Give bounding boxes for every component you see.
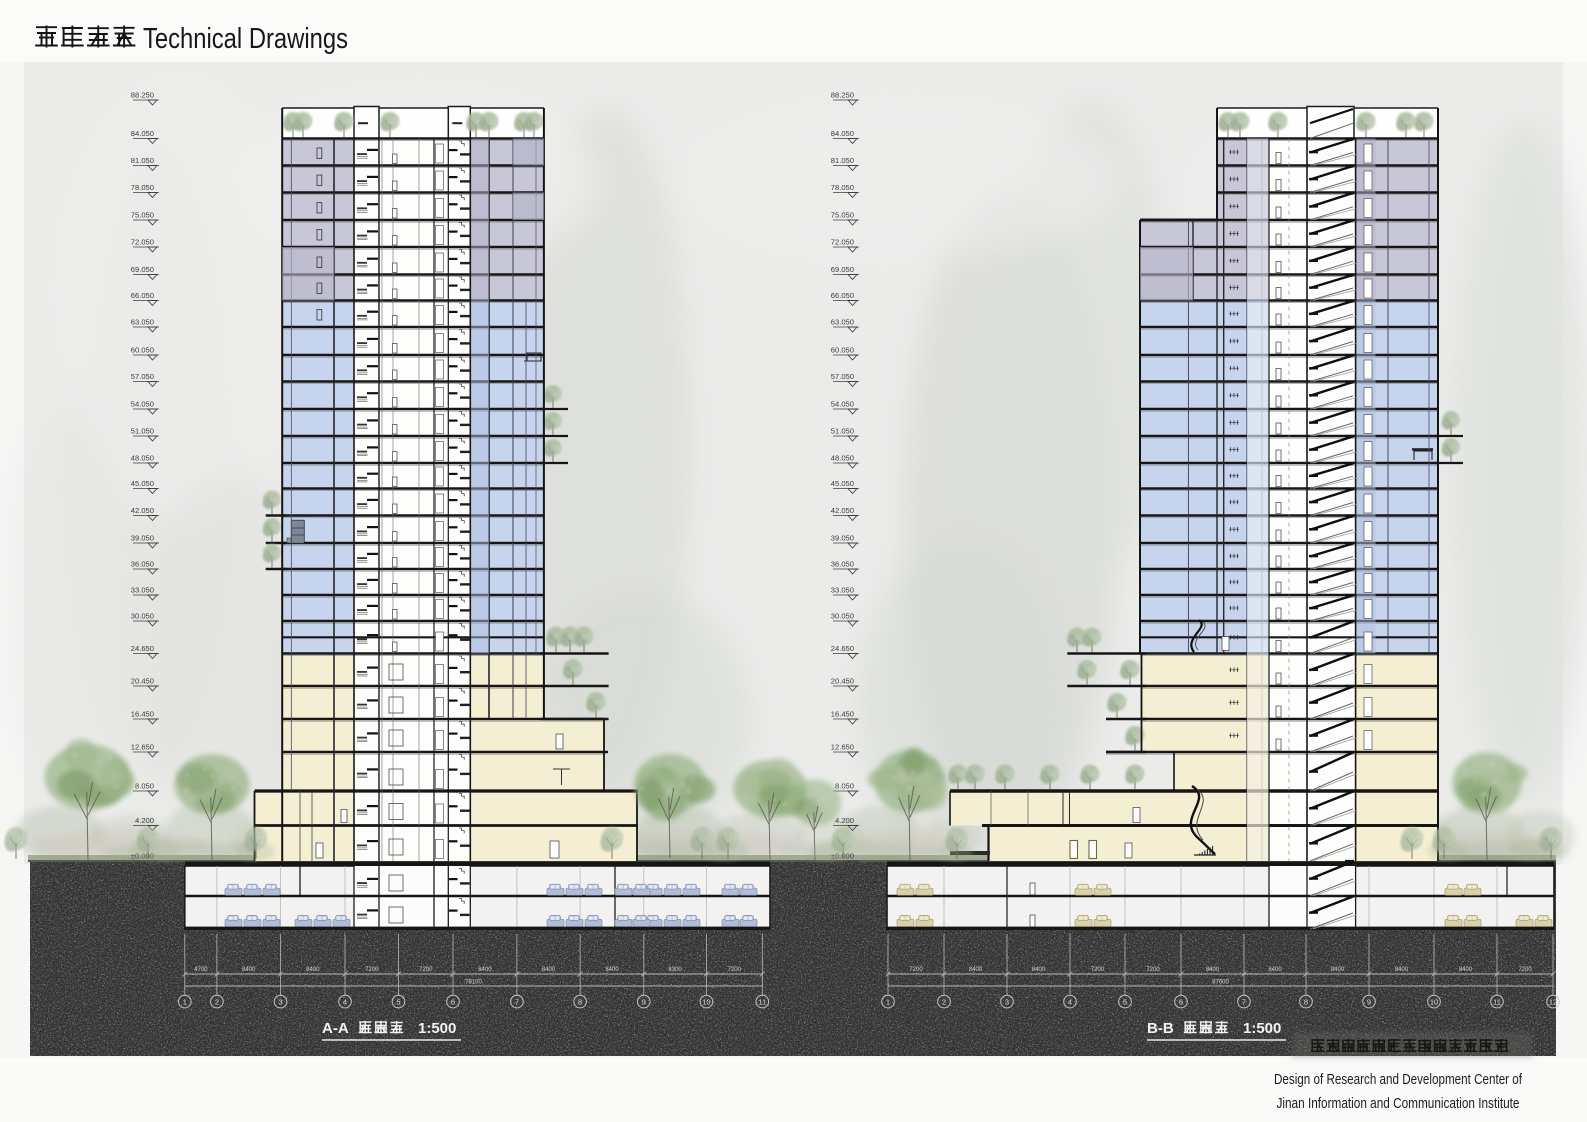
svg-text:48.050: 48.050 xyxy=(831,454,854,463)
svg-text:8400: 8400 xyxy=(1268,967,1282,973)
svg-text:8400: 8400 xyxy=(478,967,492,973)
svg-text:8: 8 xyxy=(578,997,582,1006)
svg-text:87600: 87600 xyxy=(1212,980,1229,986)
svg-text:9: 9 xyxy=(1367,997,1371,1006)
svg-text:12.650: 12.650 xyxy=(131,743,154,752)
svg-text:78.050: 78.050 xyxy=(831,183,854,192)
svg-text:88.250: 88.250 xyxy=(831,91,854,100)
svg-text:39.050: 39.050 xyxy=(831,534,854,543)
svg-text:3: 3 xyxy=(1005,997,1009,1006)
svg-text:Jinan Information and Communic: Jinan Information and Communication Inst… xyxy=(1277,1095,1520,1112)
svg-text:10: 10 xyxy=(1430,997,1438,1006)
svg-text:36.050: 36.050 xyxy=(131,560,154,569)
svg-text:7200: 7200 xyxy=(1146,967,1160,973)
svg-text:66.050: 66.050 xyxy=(831,291,854,300)
svg-text:48.050: 48.050 xyxy=(131,454,154,463)
svg-text:7200: 7200 xyxy=(1091,967,1105,973)
svg-text:5: 5 xyxy=(1123,997,1127,1006)
svg-text:8400: 8400 xyxy=(1206,967,1220,973)
svg-text:81.050: 81.050 xyxy=(831,156,854,165)
svg-text:12.650: 12.650 xyxy=(831,743,854,752)
svg-text:54.050: 54.050 xyxy=(131,400,154,409)
svg-text:1:500: 1:500 xyxy=(418,1020,456,1037)
svg-text:63.050: 63.050 xyxy=(831,318,854,327)
svg-text:7: 7 xyxy=(515,997,519,1006)
svg-text:8: 8 xyxy=(1304,997,1308,1006)
svg-text:81.050: 81.050 xyxy=(131,156,154,165)
svg-text:4.200: 4.200 xyxy=(135,816,154,825)
svg-text:72.050: 72.050 xyxy=(831,238,854,247)
svg-text:24.650: 24.650 xyxy=(831,644,854,653)
svg-text:84.050: 84.050 xyxy=(831,129,854,138)
svg-text:88.250: 88.250 xyxy=(131,91,154,100)
svg-text:Technical Drawings: Technical Drawings xyxy=(143,23,348,55)
svg-text:-8.400: -8.400 xyxy=(132,920,154,929)
svg-text:B-B: B-B xyxy=(1147,1020,1174,1037)
svg-text:78.050: 78.050 xyxy=(131,183,154,192)
svg-text:8.050: 8.050 xyxy=(835,782,854,791)
svg-text:66.050: 66.050 xyxy=(131,291,154,300)
svg-text:8400: 8400 xyxy=(605,967,619,973)
svg-text:8400: 8400 xyxy=(306,967,320,973)
svg-text:8400: 8400 xyxy=(242,967,256,973)
svg-text:16.450: 16.450 xyxy=(831,710,854,719)
svg-text:72.050: 72.050 xyxy=(131,238,154,247)
svg-text:20.450: 20.450 xyxy=(131,677,154,686)
svg-text:10: 10 xyxy=(702,997,710,1006)
svg-text:11: 11 xyxy=(758,997,766,1006)
svg-text:78100: 78100 xyxy=(465,980,482,986)
svg-text:12: 12 xyxy=(1549,997,1557,1006)
svg-text:75.050: 75.050 xyxy=(131,211,154,220)
svg-text:57.050: 57.050 xyxy=(131,372,154,381)
svg-text:30.050: 30.050 xyxy=(131,612,154,621)
svg-text:8400: 8400 xyxy=(1395,967,1409,973)
svg-text:9: 9 xyxy=(642,997,646,1006)
svg-text:7: 7 xyxy=(1242,997,1246,1006)
svg-text:A-A: A-A xyxy=(322,1020,349,1037)
svg-text:11: 11 xyxy=(1493,997,1501,1006)
svg-text:45.050: 45.050 xyxy=(831,479,854,488)
svg-text:16.450: 16.450 xyxy=(131,710,154,719)
svg-text:7200: 7200 xyxy=(365,967,379,973)
svg-text:33.050: 33.050 xyxy=(131,586,154,595)
svg-text:2: 2 xyxy=(215,997,219,1006)
svg-text:8400: 8400 xyxy=(1032,967,1046,973)
svg-text:54.050: 54.050 xyxy=(831,400,854,409)
svg-text:45.050: 45.050 xyxy=(131,479,154,488)
svg-text:1: 1 xyxy=(886,997,890,1006)
svg-text:2: 2 xyxy=(942,997,946,1006)
svg-text:7200: 7200 xyxy=(909,967,923,973)
svg-text:51.050: 51.050 xyxy=(131,427,154,436)
svg-text:42.050: 42.050 xyxy=(831,506,854,515)
svg-text:-4.200: -4.200 xyxy=(132,887,154,896)
svg-text:4.200: 4.200 xyxy=(835,816,854,825)
svg-text:1: 1 xyxy=(183,997,187,1006)
svg-text:3: 3 xyxy=(278,997,282,1006)
svg-text:20.450: 20.450 xyxy=(831,677,854,686)
svg-text:75.050: 75.050 xyxy=(831,211,854,220)
svg-text:7200: 7200 xyxy=(1518,967,1532,973)
svg-text:84.050: 84.050 xyxy=(131,129,154,138)
svg-text:30.050: 30.050 xyxy=(831,612,854,621)
svg-text:51.050: 51.050 xyxy=(831,427,854,436)
svg-text:39.050: 39.050 xyxy=(131,534,154,543)
svg-text:24.650: 24.650 xyxy=(131,644,154,653)
svg-text:8.050: 8.050 xyxy=(135,782,154,791)
svg-text:5: 5 xyxy=(396,997,400,1006)
svg-text:36.050: 36.050 xyxy=(831,560,854,569)
svg-text:8400: 8400 xyxy=(542,967,556,973)
svg-text:-8.400: -8.400 xyxy=(832,920,854,929)
svg-text:33.050: 33.050 xyxy=(831,586,854,595)
svg-text:7200: 7200 xyxy=(728,967,742,973)
svg-text:69.050: 69.050 xyxy=(831,265,854,274)
svg-text:60.050: 60.050 xyxy=(831,346,854,355)
svg-text:8300: 8300 xyxy=(668,967,682,973)
svg-text:4700: 4700 xyxy=(194,967,208,973)
svg-text:60.050: 60.050 xyxy=(131,346,154,355)
svg-text:8400: 8400 xyxy=(1459,967,1473,973)
svg-text:7200: 7200 xyxy=(419,967,433,973)
svg-text:57.050: 57.050 xyxy=(831,372,854,381)
svg-text:8400: 8400 xyxy=(969,967,983,973)
svg-text:-4.200: -4.200 xyxy=(832,887,854,896)
svg-text:4: 4 xyxy=(343,997,347,1006)
svg-text:63.050: 63.050 xyxy=(131,318,154,327)
svg-text:4: 4 xyxy=(1068,997,1072,1006)
svg-text:Design of Research and Develop: Design of Research and Development Cente… xyxy=(1274,1071,1523,1088)
svg-text:6: 6 xyxy=(1179,997,1183,1006)
svg-text:42.050: 42.050 xyxy=(131,506,154,515)
svg-text:6: 6 xyxy=(451,997,455,1006)
svg-text:69.050: 69.050 xyxy=(131,265,154,274)
svg-text:8400: 8400 xyxy=(1331,967,1345,973)
svg-text:1:500: 1:500 xyxy=(1243,1020,1281,1037)
